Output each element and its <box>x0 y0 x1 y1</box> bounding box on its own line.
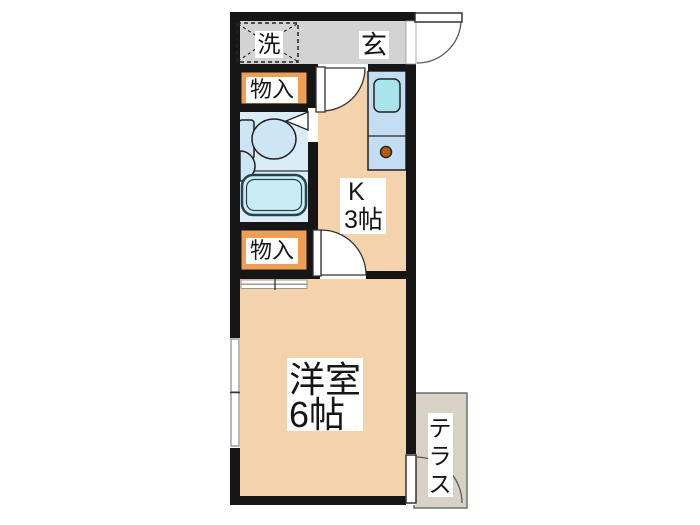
entrance-label: 玄 <box>361 30 387 60</box>
toilet-bowl <box>252 119 296 159</box>
wall-right <box>406 12 416 505</box>
kitchen-sink <box>374 79 400 112</box>
terrace-label-char-2: ラ <box>429 443 452 469</box>
storage-lower-label: 物入 <box>250 238 294 263</box>
terrace-door-leaf <box>406 455 416 503</box>
terrace-label-char-1: テ <box>429 415 452 441</box>
room-door-leaf <box>313 230 321 276</box>
window-pane-lower <box>231 392 239 446</box>
kitchen-size-label: 3帖 <box>344 206 383 234</box>
closet-slider-front <box>241 280 307 284</box>
kitchen-door-leaf <box>316 67 325 112</box>
wall-storage-bath <box>230 105 318 112</box>
wall-bath-storage <box>230 222 318 229</box>
entrance-door-leaf <box>415 13 462 22</box>
terrace-label-char-3: ス <box>429 471 452 497</box>
storage-upper-label: 物入 <box>250 77 294 102</box>
closet-slider-back <box>241 285 307 289</box>
burner-dot <box>381 147 392 158</box>
window-pane-upper <box>231 339 239 392</box>
floorplan-image: 洗 玄 物入 K 3帖 物入 洋室 6帖 テ ラ ス <box>0 0 700 525</box>
wall-top <box>230 12 416 21</box>
room-size-label: 6帖 <box>289 394 345 435</box>
wall-bottom <box>230 496 416 505</box>
laundry-label: 洗 <box>258 31 281 57</box>
bathroom-entry-opening <box>308 108 318 142</box>
floorplan-drawing: 洗 玄 物入 K 3帖 物入 洋室 6帖 テ ラ ス <box>0 0 700 525</box>
kitchen-name-label: K <box>348 178 365 206</box>
entrance-door-opening <box>406 21 416 64</box>
bathtub <box>242 175 306 215</box>
